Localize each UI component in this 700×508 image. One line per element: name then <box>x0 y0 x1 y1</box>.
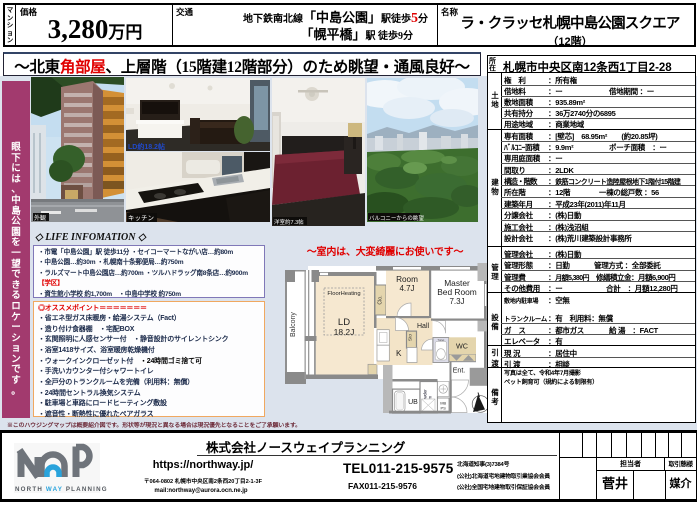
svg-text:Balcony: Balcony <box>290 312 297 337</box>
svg-text:UB: UB <box>408 399 418 406</box>
svg-text:K: K <box>396 349 402 358</box>
svg-text:Toilet: Toilet <box>437 338 444 342</box>
svg-text:Ent.: Ent. <box>453 368 466 375</box>
svg-text:バルコニーからの眺望: バルコニーからの眺望 <box>369 214 424 222</box>
svg-text:LD約18.2帖: LD約18.2帖 <box>128 142 165 151</box>
svg-text:Clo.: Clo. <box>378 295 384 304</box>
svg-text:洋室約7.3帖: 洋室約7.3帖 <box>274 218 304 226</box>
svg-text:Room: Room <box>396 275 418 284</box>
svg-text:4.7J: 4.7J <box>399 284 414 293</box>
svg-text:外観: 外観 <box>34 214 46 222</box>
svg-text:WC: WC <box>456 342 468 351</box>
svg-text:Hall: Hall <box>417 323 430 330</box>
svg-text:7.3J: 7.3J <box>449 297 464 306</box>
svg-text:Sto: Sto <box>408 334 414 342</box>
svg-text:Bed Room: Bed Room <box>437 287 477 297</box>
svg-text:キッチン: キッチン <box>128 214 154 222</box>
svg-text:PS: PS <box>441 406 447 411</box>
svg-text:NORTH WAY PLANNING: NORTH WAY PLANNING <box>15 486 108 493</box>
svg-text:FloorHeating: FloorHeating <box>327 291 360 297</box>
svg-text:18.2J: 18.2J <box>334 327 355 337</box>
